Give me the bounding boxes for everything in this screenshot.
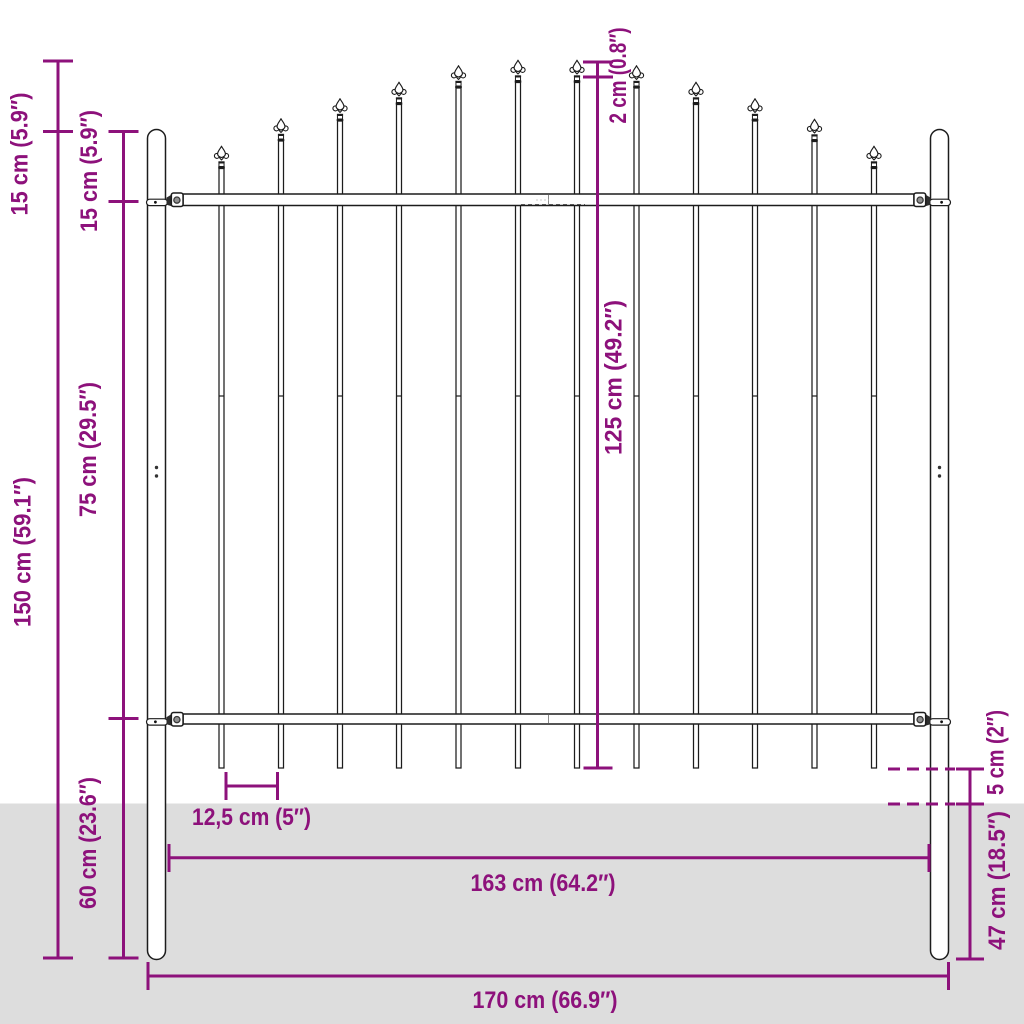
svg-text:2 cm (0.8″): 2 cm (0.8″) [605, 28, 632, 124]
svg-text:75 cm (29.5″): 75 cm (29.5″) [75, 382, 102, 517]
svg-text:163 cm (64.2″): 163 cm (64.2″) [471, 870, 616, 897]
svg-text:150 cm (59.1″): 150 cm (59.1″) [10, 477, 37, 627]
svg-text:60 cm (23.6″): 60 cm (23.6″) [75, 777, 102, 909]
svg-text:170 cm (66.9″): 170 cm (66.9″) [473, 987, 618, 1014]
svg-text:15 cm (5.9″): 15 cm (5.9″) [7, 93, 34, 216]
svg-text:5 cm (2″): 5 cm (2″) [983, 710, 1010, 795]
svg-text:47 cm (18.5″): 47 cm (18.5″) [984, 811, 1011, 950]
svg-text:125 cm (49.2″): 125 cm (49.2″) [601, 300, 628, 455]
svg-text:12,5 cm (5″): 12,5 cm (5″) [192, 804, 311, 831]
svg-text:15 cm (5.9″): 15 cm (5.9″) [76, 110, 103, 232]
